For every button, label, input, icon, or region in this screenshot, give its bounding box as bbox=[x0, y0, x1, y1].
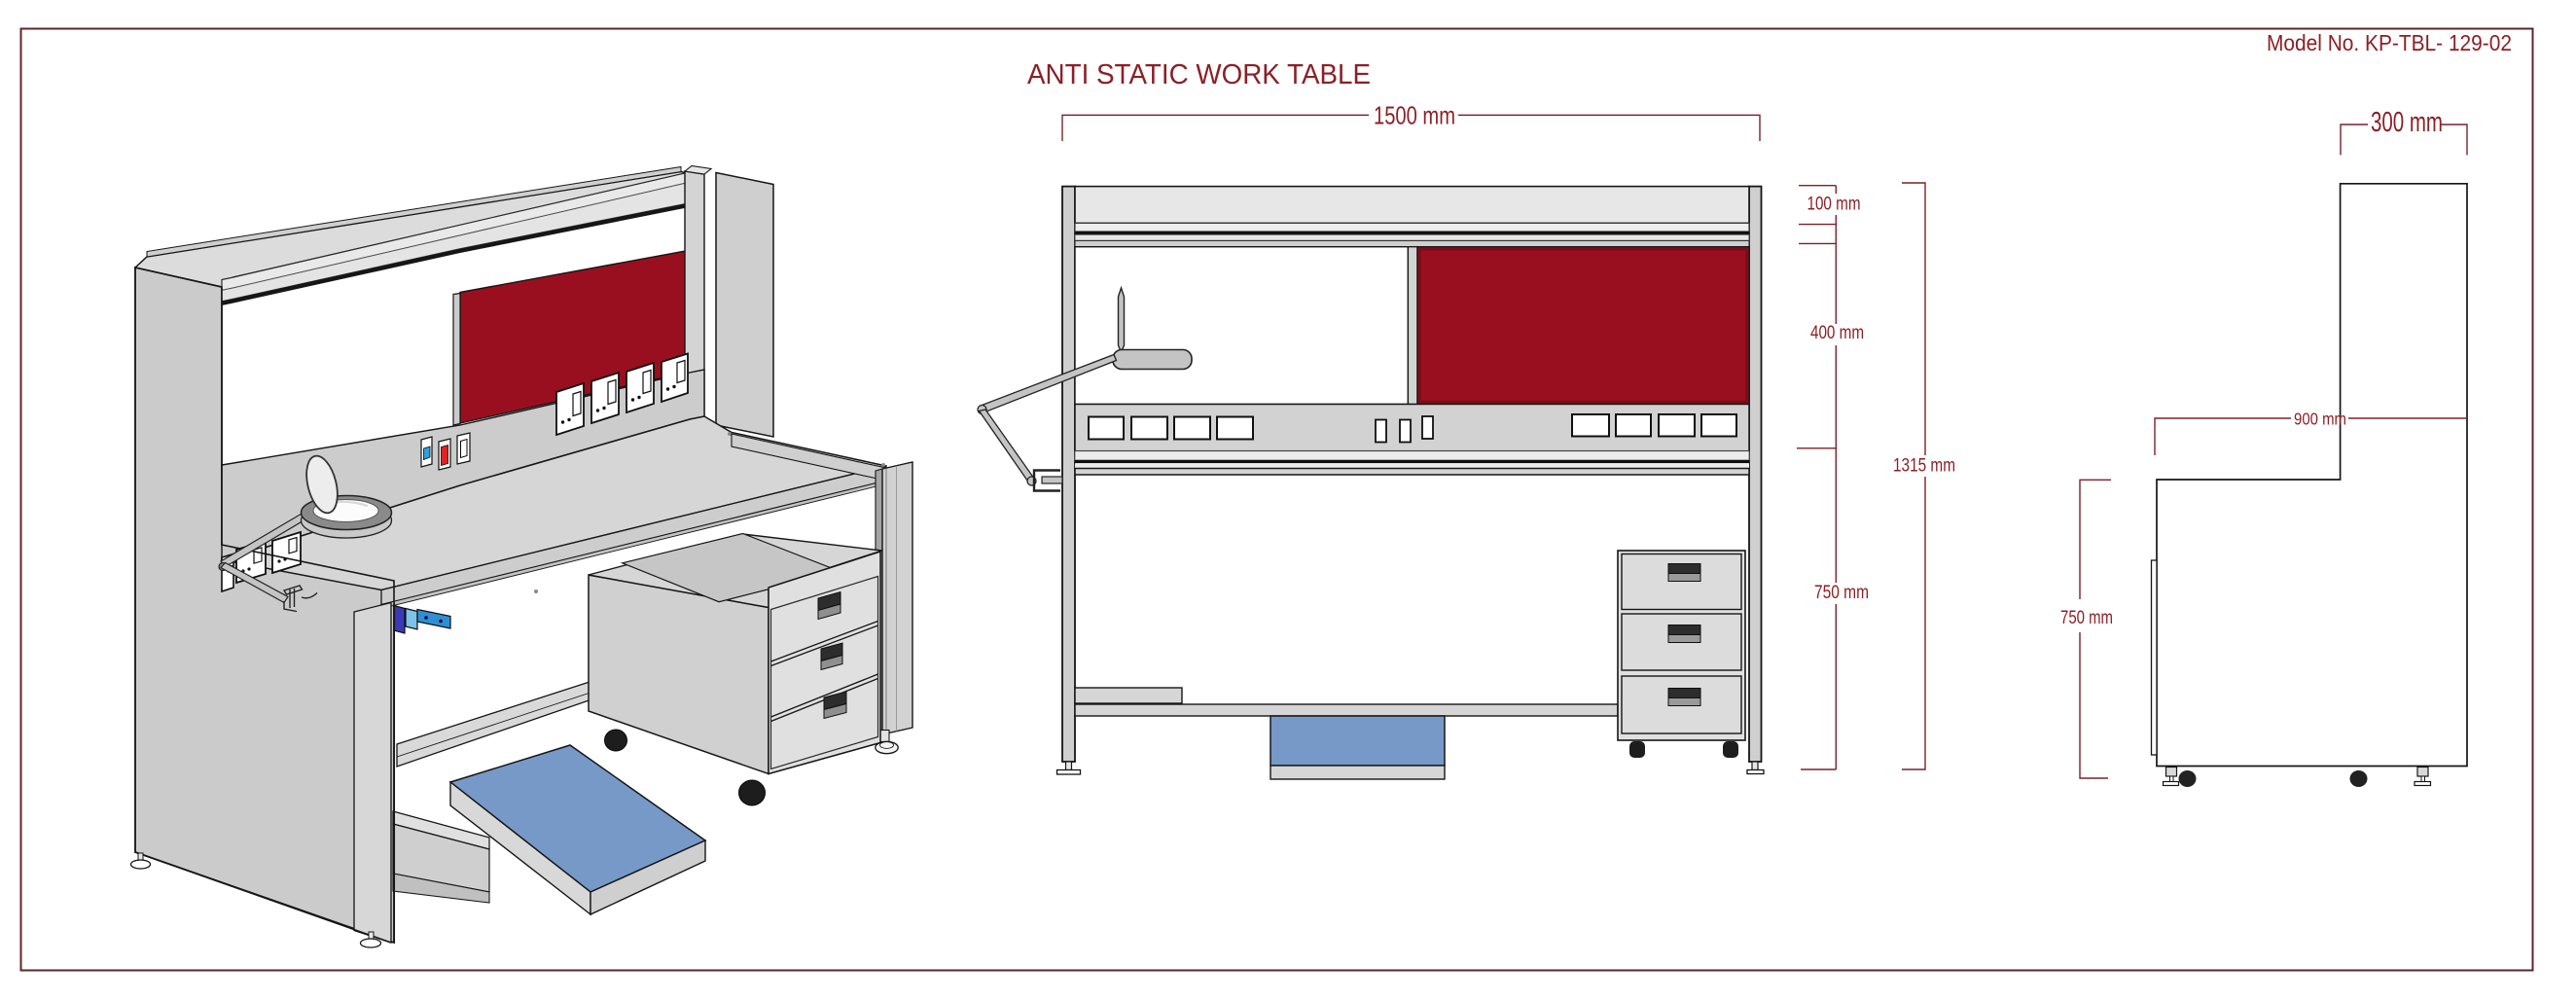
svg-text:Model No. KP-TBL- 129-02: Model No. KP-TBL- 129-02 bbox=[2267, 30, 2512, 55]
svg-text:1500 mm: 1500 mm bbox=[1374, 101, 1455, 130]
svg-text:750 mm: 750 mm bbox=[1814, 583, 1869, 603]
svg-text:900 mm: 900 mm bbox=[2294, 410, 2346, 429]
svg-text:300 mm: 300 mm bbox=[2371, 107, 2443, 138]
svg-text:1315 mm: 1315 mm bbox=[1893, 456, 1955, 477]
svg-text:750 mm: 750 mm bbox=[2060, 608, 2113, 628]
svg-text:ANTI STATIC WORK TABLE: ANTI STATIC WORK TABLE bbox=[1027, 59, 1371, 90]
svg-text:400 mm: 400 mm bbox=[1810, 323, 1864, 343]
svg-text:100 mm: 100 mm bbox=[1807, 195, 1861, 215]
